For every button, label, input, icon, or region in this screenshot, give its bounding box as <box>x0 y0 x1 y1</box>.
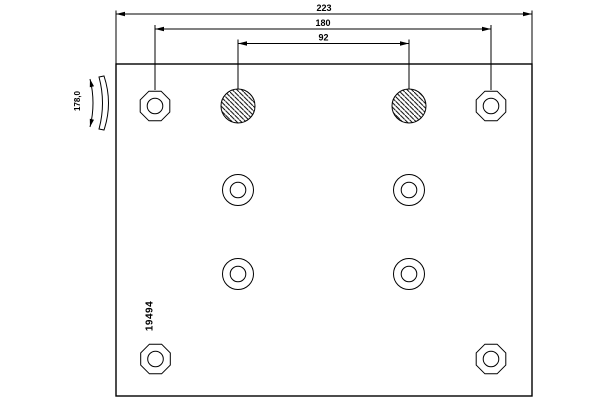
dimension-outer-hole-spacing: 180 <box>155 18 491 31</box>
dimension-label-total-length: 223 <box>316 3 331 13</box>
rivet-hole <box>476 91 506 121</box>
technical-drawing: 223 180 92 178,0 19494 <box>0 0 600 400</box>
marked-rivet-hole <box>392 89 426 123</box>
lining-width-label: 178,0 <box>73 90 82 111</box>
lining-cross-section <box>99 76 109 130</box>
rivet-hole <box>476 344 506 374</box>
curvature-symbol <box>90 76 109 130</box>
arrowhead-right-icon <box>523 12 532 16</box>
arrowhead-left-icon <box>116 12 125 16</box>
arc-arrowhead-top-icon <box>90 79 94 87</box>
rivet-hole <box>140 91 170 121</box>
dimension-label-inner-hole-spacing: 92 <box>318 33 328 43</box>
brake-lining-plate <box>116 64 532 396</box>
arrowhead-left-icon <box>238 41 247 45</box>
drawing-canvas: 223 180 92 178,0 19494 <box>0 0 600 400</box>
dimension-label-outer-hole-spacing: 180 <box>315 18 330 28</box>
dimension-inner-hole-spacing: 92 <box>238 33 409 46</box>
part-number-label: 19494 <box>145 301 156 331</box>
marked-rivet-hole <box>221 89 255 123</box>
rivet-hole <box>394 259 425 290</box>
rivet-hole <box>141 344 171 374</box>
dimension-total-length: 223 <box>116 3 532 16</box>
rivet-hole <box>223 175 254 206</box>
arrowhead-right-icon <box>400 41 409 45</box>
rivet-hole <box>223 259 254 290</box>
arrowhead-right-icon <box>482 27 491 31</box>
arrowhead-left-icon <box>155 27 164 31</box>
arc-arrowhead-bottom-icon <box>90 119 94 127</box>
rivet-hole <box>394 175 425 206</box>
